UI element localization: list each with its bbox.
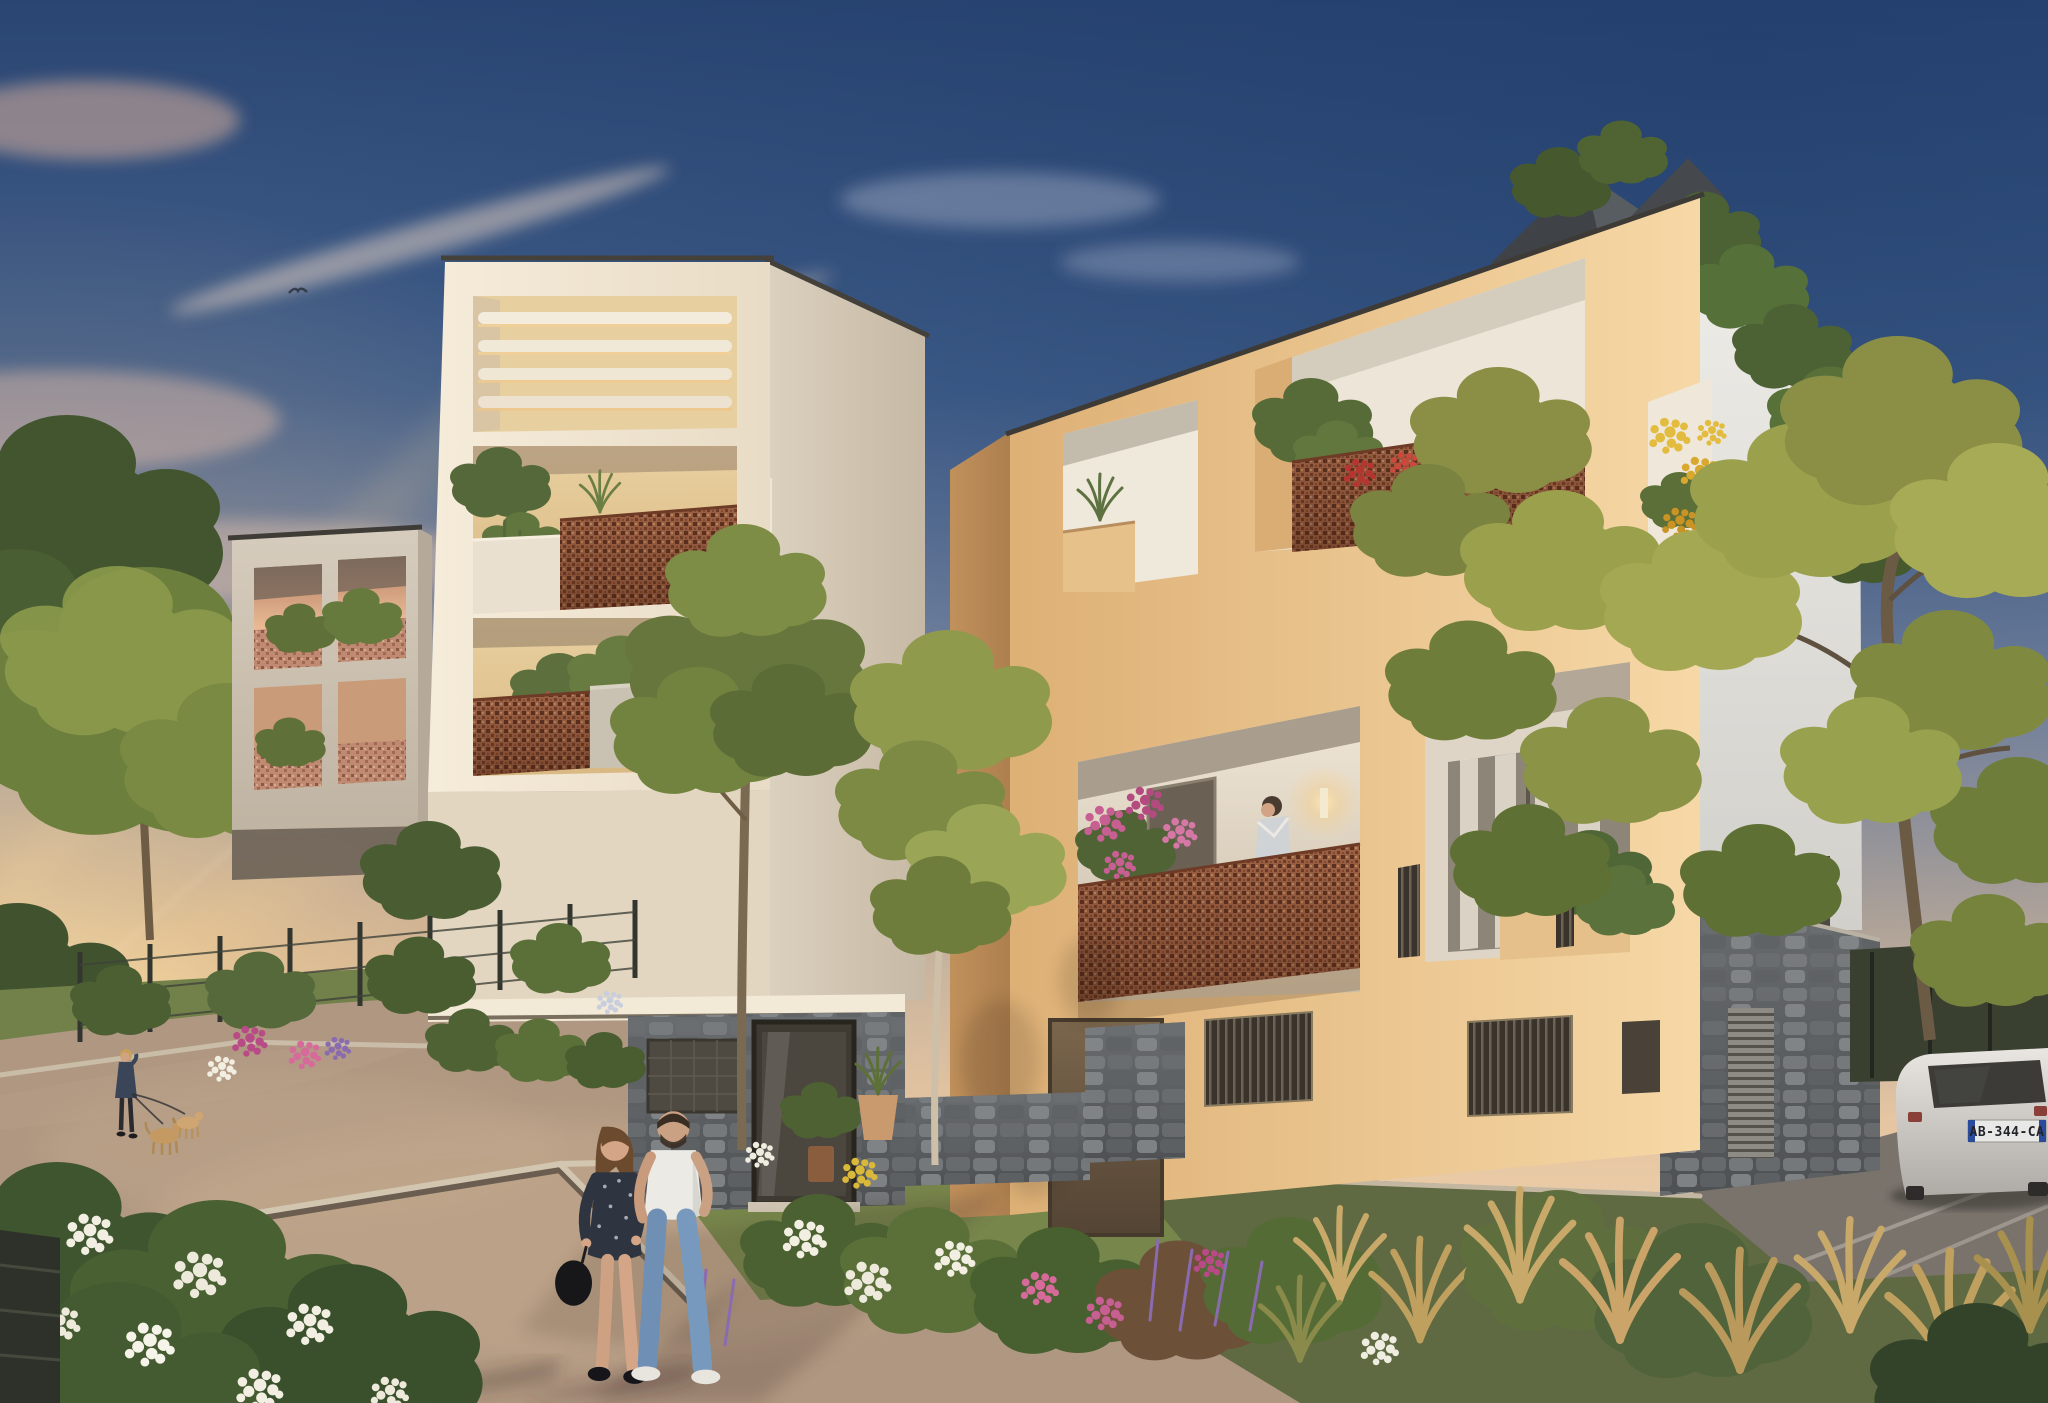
entrance-planter-pot	[858, 1095, 898, 1140]
parked-car: AB-344-CA	[1890, 1048, 2048, 1210]
slot-window-1	[1398, 864, 1420, 958]
license-plate: AB-344-CA	[1968, 1120, 2046, 1142]
corner-fence	[0, 1230, 60, 1403]
wall-sconce	[1320, 788, 1328, 818]
handbag	[555, 1260, 592, 1305]
letterbox-panel[interactable]	[648, 1040, 740, 1112]
license-plate-text: AB-344-CA	[1970, 1125, 2045, 1140]
taillight-left	[1908, 1112, 1922, 1122]
taillight-right	[2034, 1106, 2047, 1116]
rooftop-pergola	[473, 296, 737, 432]
slatted-gate	[1728, 1008, 1774, 1158]
archviz-rendering: AB-344-CA	[0, 0, 2048, 1403]
scene-canvas: AB-344-CA	[0, 0, 2048, 1403]
left-wing-building	[228, 527, 432, 880]
